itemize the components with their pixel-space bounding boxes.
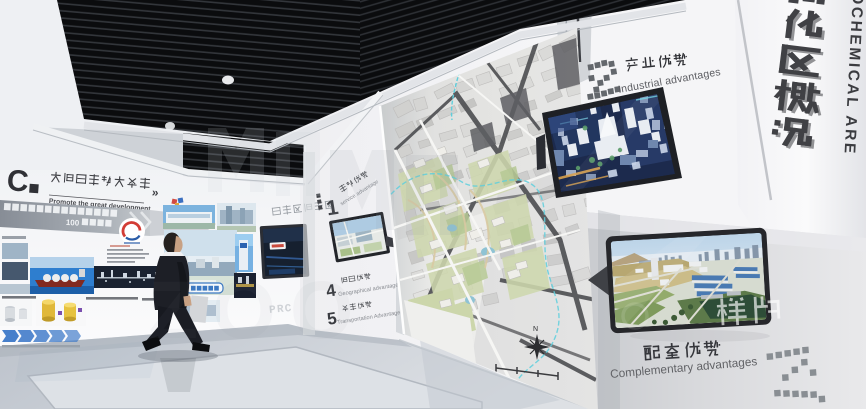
svg-text:N: N <box>533 326 538 333</box>
svg-text:C: C <box>6 164 30 198</box>
svg-text:100: 100 <box>66 218 80 228</box>
svg-text:ZOO: ZOO <box>148 265 368 356</box>
